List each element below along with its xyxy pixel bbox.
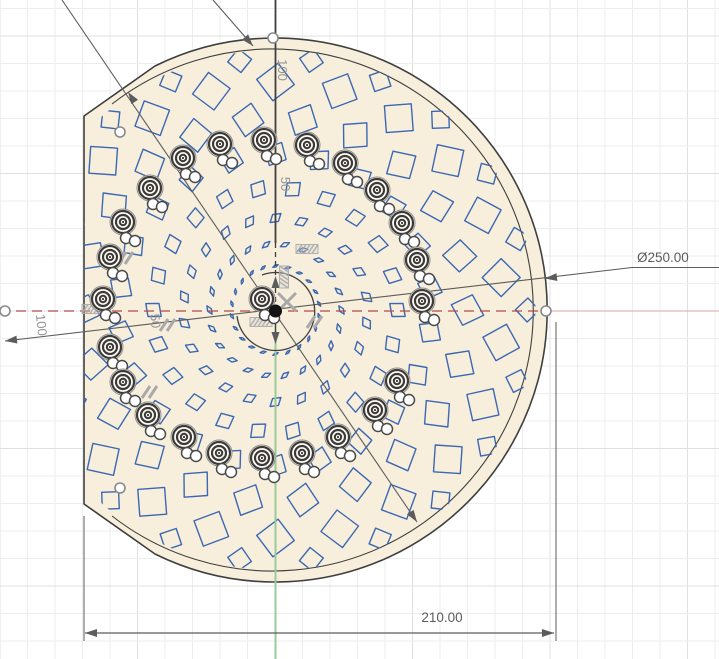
vertical-dimension-100-label[interactable]: 100 bbox=[275, 59, 290, 81]
diamond-cutout[interactable] bbox=[53, 436, 74, 457]
diamond-cutout[interactable] bbox=[32, 259, 69, 296]
width-dimension-label[interactable]: 210.00 bbox=[421, 610, 462, 625]
dimension-arrowhead bbox=[85, 629, 97, 637]
sketch-point[interactable] bbox=[115, 483, 125, 493]
sketch-origin-point[interactable] bbox=[269, 305, 282, 318]
sketch-point-marker[interactable] bbox=[130, 396, 141, 407]
sketch-point-marker[interactable] bbox=[404, 395, 415, 406]
sketch-point[interactable] bbox=[115, 127, 125, 137]
sketch-point-marker[interactable] bbox=[424, 274, 435, 285]
sketch-point-marker[interactable] bbox=[382, 424, 393, 435]
diamond-cutout[interactable] bbox=[52, 199, 84, 231]
dimension-arrowhead bbox=[542, 629, 554, 637]
sketch-point[interactable] bbox=[268, 33, 278, 43]
sketch-point[interactable] bbox=[0, 306, 10, 316]
sketch-point-marker[interactable] bbox=[384, 204, 395, 215]
diamond-cutout[interactable] bbox=[22, 369, 45, 392]
left-dimension-100-label[interactable]: 100 bbox=[33, 313, 50, 336]
sketch-point-marker[interactable] bbox=[191, 451, 202, 462]
diameter-dimension-label[interactable]: Ø250.00 bbox=[637, 250, 689, 265]
sketch-point-marker[interactable] bbox=[227, 158, 238, 169]
sketch-point-marker[interactable] bbox=[345, 451, 356, 462]
sketch-point-marker[interactable] bbox=[429, 315, 440, 326]
sketch-point-marker[interactable] bbox=[110, 313, 121, 324]
sketch-point-marker[interactable] bbox=[314, 159, 325, 170]
sketch-point-marker[interactable] bbox=[309, 467, 320, 478]
constraint-hatch-icon[interactable] bbox=[280, 266, 289, 288]
sketch-point-marker[interactable] bbox=[269, 472, 280, 483]
generated-sketch-geometry bbox=[0, 0, 719, 659]
sketch-point-marker[interactable] bbox=[190, 172, 201, 183]
cad-sketch-viewport: Ø250.00 210.00 100 50 100 50 bbox=[0, 0, 719, 659]
constraint-hatch-icon[interactable] bbox=[296, 245, 318, 254]
sketch-point-marker[interactable] bbox=[157, 202, 168, 213]
sketch-point-marker[interactable] bbox=[117, 271, 128, 282]
sketch-point[interactable] bbox=[541, 306, 551, 316]
dimension-arrowhead bbox=[5, 336, 18, 345]
diamond-cutout[interactable] bbox=[12, 298, 36, 322]
sketch-point-marker[interactable] bbox=[155, 429, 166, 440]
sketch-point-marker[interactable] bbox=[352, 177, 363, 188]
left-dimension-50-label[interactable]: 50 bbox=[147, 313, 163, 329]
sketch-point-marker[interactable] bbox=[409, 237, 420, 248]
sketch-point-marker[interactable] bbox=[226, 467, 237, 478]
vertical-dimension-50-label[interactable]: 50 bbox=[278, 177, 293, 191]
diamond-cutout[interactable] bbox=[22, 228, 45, 251]
sketch-canvas[interactable]: Ø250.00 210.00 100 50 100 50 bbox=[0, 0, 719, 659]
sketch-point-marker[interactable] bbox=[130, 236, 141, 247]
sketch-point-marker[interactable] bbox=[271, 154, 282, 165]
